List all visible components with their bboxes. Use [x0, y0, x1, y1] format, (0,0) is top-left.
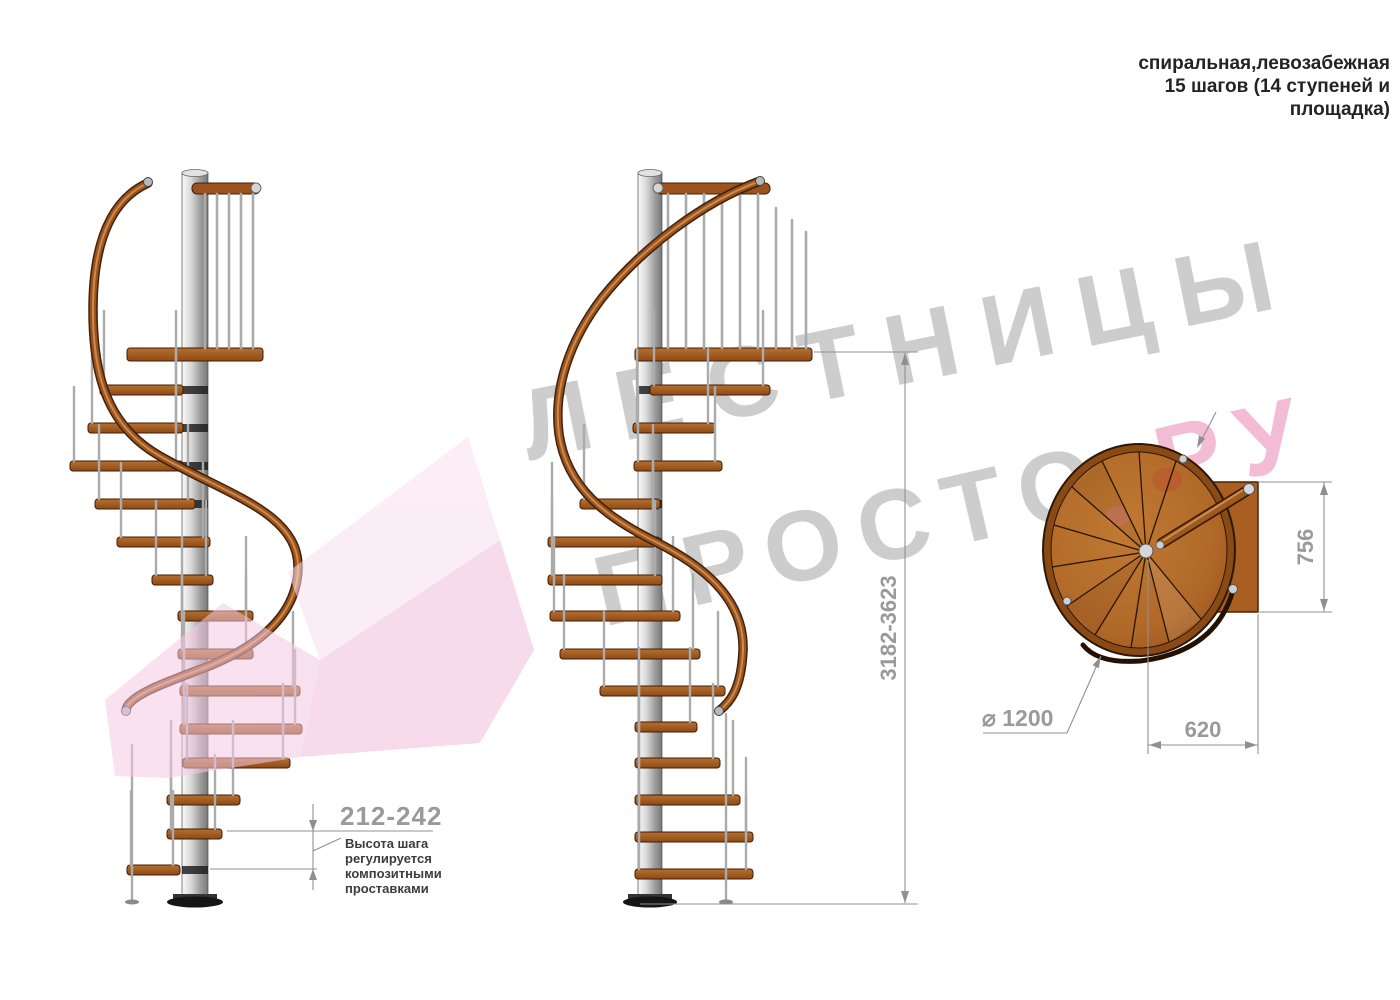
spiral-staircase-drawing-page: ЛЕСТНИЦЫ ПРОСТО.РУ: [0, 0, 1400, 1000]
side-view-left: [70, 170, 302, 908]
base-middle: [623, 894, 677, 908]
platform-balusters-left: [205, 194, 253, 348]
dim-platform-width: 620: [1185, 717, 1222, 743]
base-left: [167, 894, 223, 908]
dim-diameter: ⌀ 1200: [982, 705, 1053, 732]
step-height-note: Высота шага регулируется композитными пр…: [345, 836, 442, 896]
drawing-title-line2: 15 шагов (14 ступеней и: [1138, 75, 1390, 98]
dim-platform-length: 756: [1293, 529, 1319, 566]
plan-view: [1043, 444, 1258, 661]
drawing-title: спиральная,левозабежная 15 шагов (14 сту…: [1138, 52, 1390, 121]
side-view-middle: [548, 170, 812, 908]
note-line3: композитными: [345, 866, 442, 881]
platform-middle: [635, 348, 812, 361]
plan-center-pole: [1139, 544, 1153, 558]
note-line4: проставками: [345, 881, 442, 896]
drawing-title-line1: спиральная,левозабежная: [1138, 52, 1390, 75]
dim-step-height: 212-242: [340, 801, 442, 832]
note-line1: Высота шага: [345, 836, 442, 851]
top-rail-left: [192, 183, 260, 194]
staircase-technical-drawing: [0, 0, 1400, 1000]
dim-total-height: 3182-3623: [876, 575, 902, 680]
pink-arrow-watermark: [105, 437, 534, 778]
drawing-title-line3: площадка): [1138, 98, 1390, 121]
platform-left: [127, 348, 263, 361]
note-line2: регулируется: [345, 851, 442, 866]
